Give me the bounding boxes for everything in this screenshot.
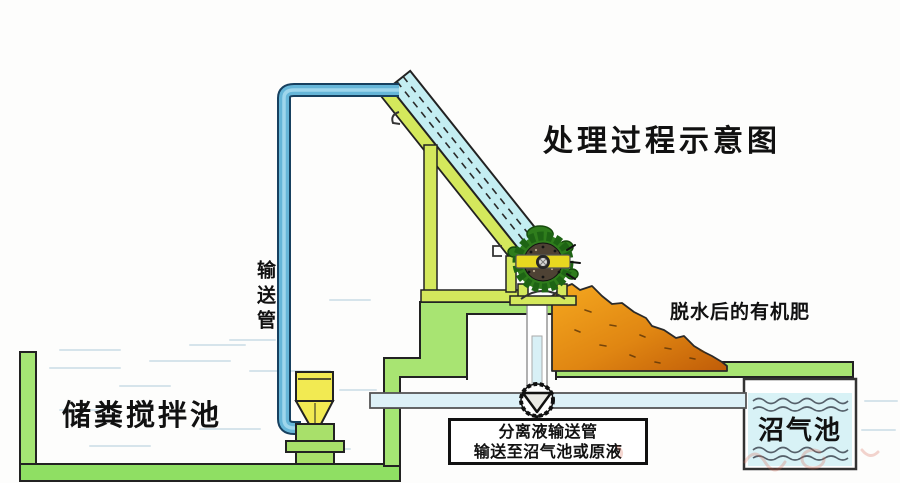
separator-drain-pipe [527, 300, 547, 394]
note-line-1: 分离液输送管 [498, 422, 597, 442]
diagram-title: 处理过程示意图 [543, 116, 781, 160]
label-biogas-tank: 沼气池 [758, 410, 842, 447]
note-line-2: 输送至沼气池或原液 [474, 442, 623, 462]
conveyor-shape [380, 71, 547, 267]
separated-liquid-pipe [370, 393, 746, 408]
process-diagram: 处理过程示意图 输送管 储粪搅拌池 脱水后的有机肥 沼气池 分离液输送管 输送至… [0, 0, 900, 483]
pump-icon [286, 372, 344, 464]
label-conveying-pipe: 输送管 [252, 260, 279, 335]
label-storage-tank: 储粪搅拌池 [62, 392, 222, 434]
note-box: 分离液输送管 输送至沼气池或原液 [448, 418, 648, 465]
label-organic-fertilizer: 脱水后的有机肥 [670, 297, 810, 324]
valve-icon [521, 384, 553, 420]
